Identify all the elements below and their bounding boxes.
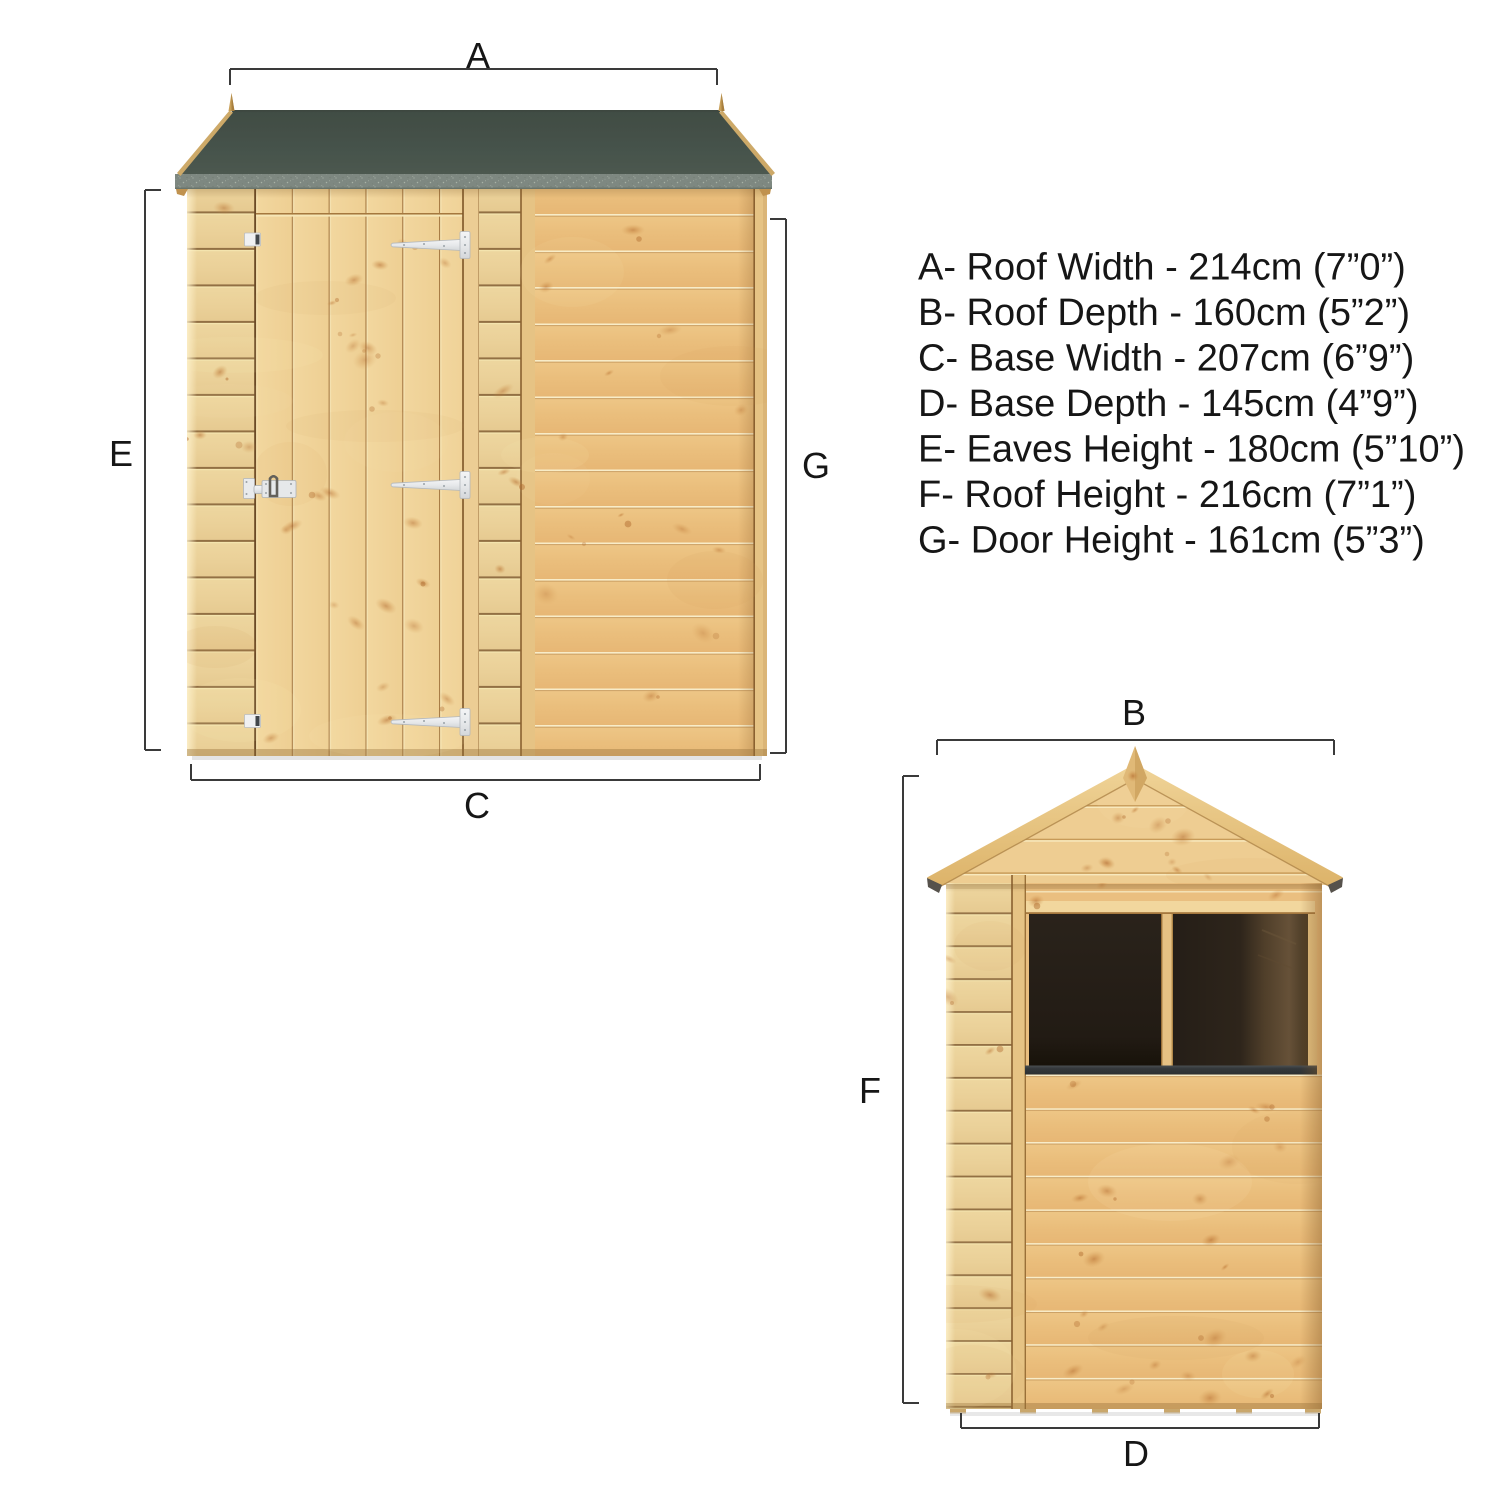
svg-text:G: G <box>802 445 830 486</box>
svg-text:A: A <box>466 35 490 76</box>
svg-text:G- Door Height - 161cm (5”3”): G- Door Height - 161cm (5”3”) <box>918 520 1425 562</box>
svg-text:E: E <box>109 433 133 474</box>
svg-text:E- Eaves Height - 180cm (5”10”: E- Eaves Height - 180cm (5”10”) <box>918 429 1465 471</box>
svg-text:C: C <box>464 785 490 826</box>
svg-text:A- Roof Width - 214cm (7”0”): A- Roof Width - 214cm (7”0”) <box>918 247 1406 289</box>
svg-text:D: D <box>1123 1433 1149 1474</box>
svg-text:C- Base Width - 207cm (6”9”): C- Base Width - 207cm (6”9”) <box>918 338 1414 380</box>
svg-text:F: F <box>859 1070 881 1111</box>
svg-text:D- Base Depth - 145cm (4”9”): D- Base Depth - 145cm (4”9”) <box>918 383 1419 425</box>
svg-text:B- Roof Depth - 160cm (5”2”): B- Roof Depth - 160cm (5”2”) <box>918 292 1410 334</box>
svg-text:B: B <box>1122 692 1146 733</box>
svg-text:F- Roof Height - 216cm (7”1”): F- Roof Height - 216cm (7”1”) <box>918 474 1416 516</box>
